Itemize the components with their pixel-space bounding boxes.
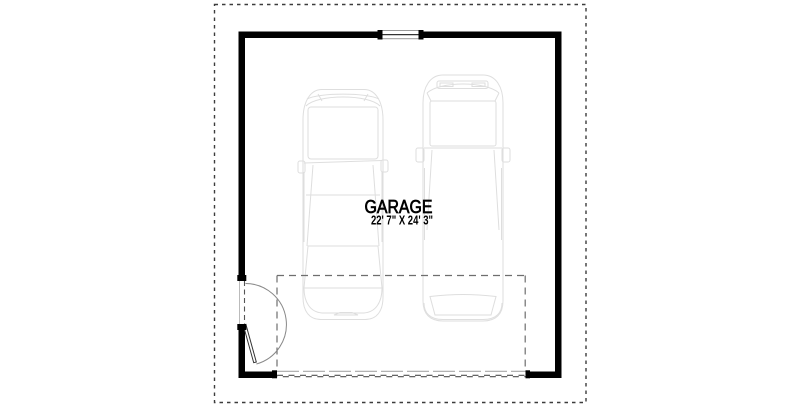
- svg-text:22' 7" X 24' 3": 22' 7" X 24' 3": [371, 214, 433, 228]
